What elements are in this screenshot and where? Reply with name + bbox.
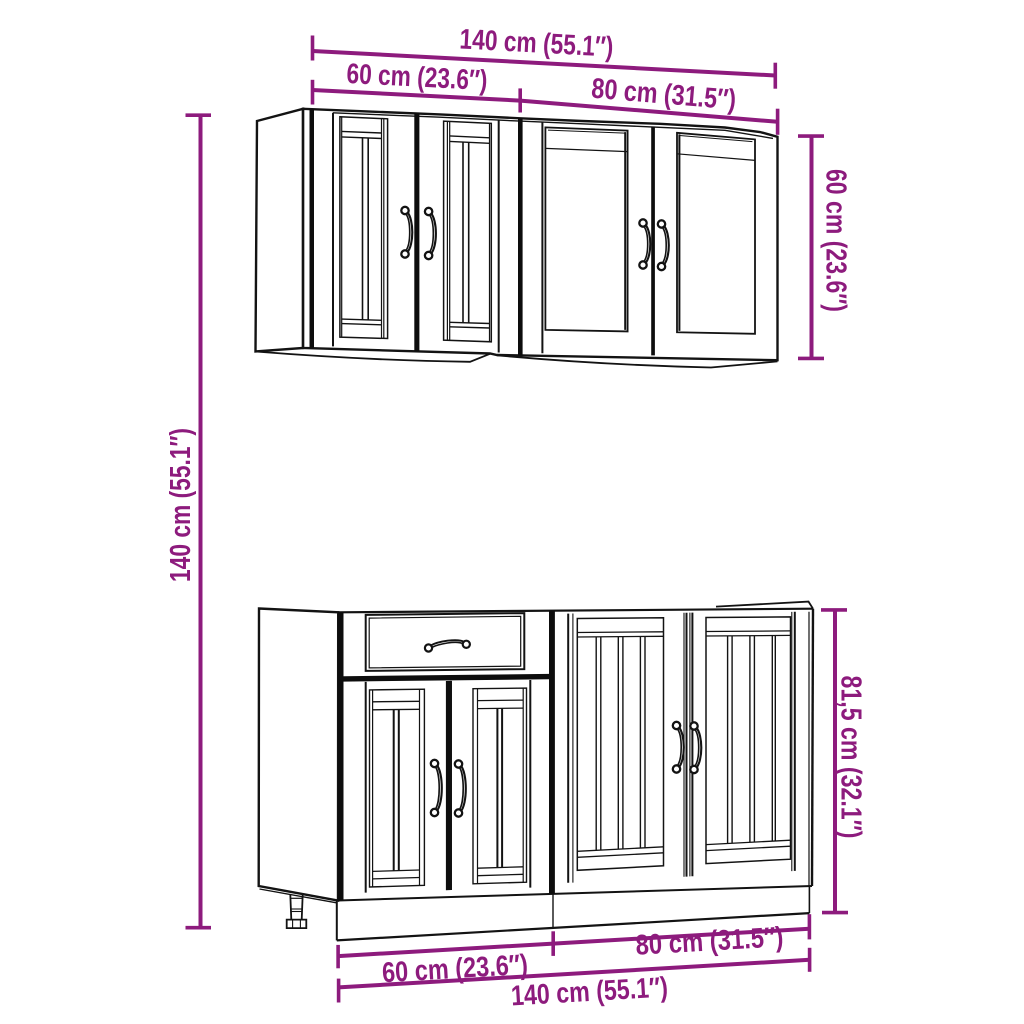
svg-text:140 cm (55.1″): 140 cm (55.1″)	[165, 428, 197, 582]
svg-text:60 cm (23.6″): 60 cm (23.6″)	[820, 169, 852, 312]
svg-text:81,5 cm (32.1″): 81,5 cm (32.1″)	[835, 676, 867, 839]
